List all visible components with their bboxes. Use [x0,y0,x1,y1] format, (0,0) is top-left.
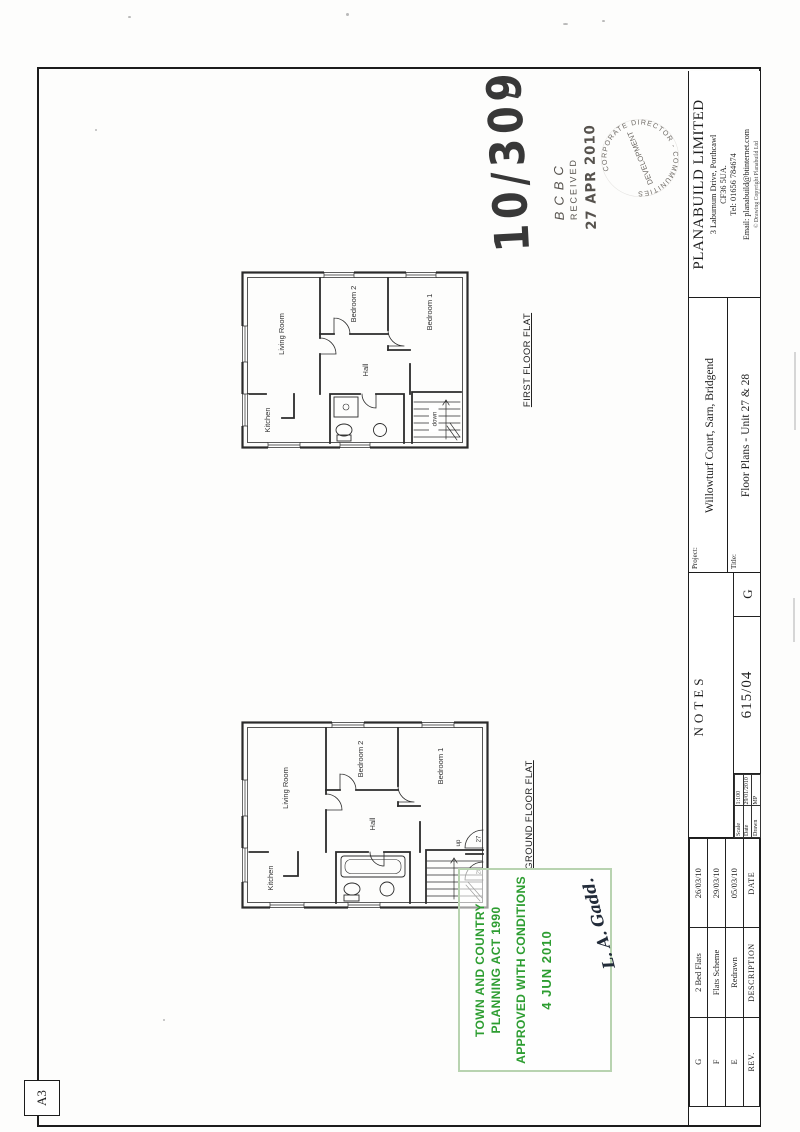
description-header: DESCRIPTION [743,928,759,1017]
drawing-border [37,67,761,1127]
paper-size-label: A3 [34,1090,50,1106]
title-block: G 2 Bed Flats 26/03/10 F Flats Scheme 29… [688,71,760,1125]
company-tel: Tel: 01656 784674 [729,71,738,298]
title-value: Floor Plans - Unit 27 & 28 [740,298,752,573]
circular-council-stamp: CORPORATE DIRECTOR - COMMUNITIES DEVELOP… [596,114,684,202]
door-swings [326,774,483,880]
project-label: Project: [691,547,699,569]
approval-line1: TOWN AND COUNTRY [473,870,487,1070]
company-name: PLANABUILD LIMITED [691,71,708,298]
drawing-sheet: A3 [0,0,800,1132]
received-stamp-org: BCBC [550,119,567,220]
rotated-sheet-container: A3 [0,0,800,1132]
notes-section: NOTES Scale 1:100 Date 29/01/2010 Drawn … [689,573,760,838]
drawn-label: Drawn [752,806,761,838]
project-title-section: Project: Willowturf Court, Sarn, Bridgen… [689,298,760,573]
circular-stamp-center-text: DEVELOPMENT [625,129,655,186]
table-row: E Redrawn 05/03/10 [725,839,743,1107]
first-plan-caption: FIRST FLOOR FLAT [522,270,533,450]
company-section: PLANABUILD LIMITED 3 Laburnum Drive, Por… [689,71,760,298]
meta-band: Scale 1:100 Date 29/01/2010 Drawn MP 615… [733,573,761,838]
table-row: F Flats Scheme 29/03/10 [707,839,725,1107]
door-label-27: 27 [477,835,483,842]
scale-value: 1:100 [735,775,744,807]
table-header-row: REV. DESCRIPTION DATE [743,839,759,1107]
scan-speck [563,23,568,25]
room-label-hall: Hall [368,817,377,830]
rev-description: Redrawn [725,928,743,1017]
notes-header: NOTES [691,573,707,838]
scan-speck [95,129,97,131]
project-row: Project: Willowturf Court, Sarn, Bridgen… [689,298,728,573]
approval-line3: APPROVED WITH CONDITIONS [514,870,528,1070]
rev-description: 2 Bed Flats [690,928,708,1017]
company-copyright: © Drawing Copyright Planabuild Ltd [754,71,760,298]
paper-size-box: A3 [24,1080,60,1116]
bathroom-fixtures [334,397,387,441]
scanned-planning-drawing: A3 [0,0,800,1132]
approval-date: 4 JUN 2010 [539,870,554,1070]
drawn-value: MP [752,775,761,807]
scan-speck [128,16,131,18]
table-row: G 2 Bed Flats 26/03/10 [690,839,708,1107]
rev-description: Flats Scheme [707,928,725,1017]
received-stamp: BCBC RECEIVED 27 APR 2010 [550,119,600,221]
rev-letter: G [690,1017,708,1106]
scale-date-drawn-table: Scale 1:100 Date 29/01/2010 Drawn MP [734,774,761,838]
received-stamp-status: RECEIVED [567,119,579,220]
room-label-kitchen: Kitchen [266,865,275,890]
room-label-bedroom1: Bedroom 1 [425,294,434,331]
drawing-number: 615/04 [734,616,761,774]
current-revision: G [734,572,761,617]
date-header: DATE [743,839,759,928]
room-label-kitchen: Kitchen [263,407,272,432]
ground-floor-plan: Kitchen Living Room Bedroom 2 Bedroom 1 … [240,720,490,910]
project-value: Willowturf Court, Sarn, Bridgend [704,298,716,573]
approval-line2: PLANNING ACT 1990 [489,870,503,1070]
scan-speck [346,13,349,16]
rev-header: REV. [743,1017,759,1106]
approval-stamp: TOWN AND COUNTRY PLANNING ACT 1990 APPRO… [458,868,612,1072]
rev-letter: E [725,1017,743,1106]
rev-date: 26/03/10 [690,839,708,928]
room-label-bedroom2: Bedroom 2 [356,741,365,778]
room-label-living: Living Room [281,767,290,809]
rev-date: 05/03/10 [725,839,743,928]
first-floor-plan: Kitchen Living Room Bedroom 2 Bedroom 1 … [240,270,470,450]
scan-speck [602,20,605,22]
company-address2: CF36 5UA. [719,71,728,298]
stairs-direction-label: down [432,411,439,426]
scan-edge-mark [793,598,795,642]
scan-edge-mark [794,352,796,430]
company-address1: 3 Laburnum Drive, Porthcawl [709,71,718,298]
room-label-hall: Hall [361,363,370,376]
scan-speck [163,1019,165,1021]
room-label-living: Living Room [277,313,286,355]
title-row: Title: Floor Plans - Unit 27 & 28 [728,298,759,573]
date-label: Date [743,806,752,838]
stairs-direction-label: up [455,839,462,846]
scale-label: Scale [735,806,744,838]
rev-letter: F [707,1017,725,1106]
revision-table: G 2 Bed Flats 26/03/10 F Flats Scheme 29… [689,838,760,1107]
date-value: 29/01/2010 [743,775,752,807]
bathroom-fixtures [341,856,405,901]
rev-date: 29/03/10 [707,839,725,928]
room-label-bedroom2: Bedroom 2 [349,286,358,323]
room-label-bedroom1: Bedroom 1 [436,748,445,785]
company-email: Email: planabuild@btinternet.com [742,71,751,298]
title-label: Title: [730,554,738,569]
